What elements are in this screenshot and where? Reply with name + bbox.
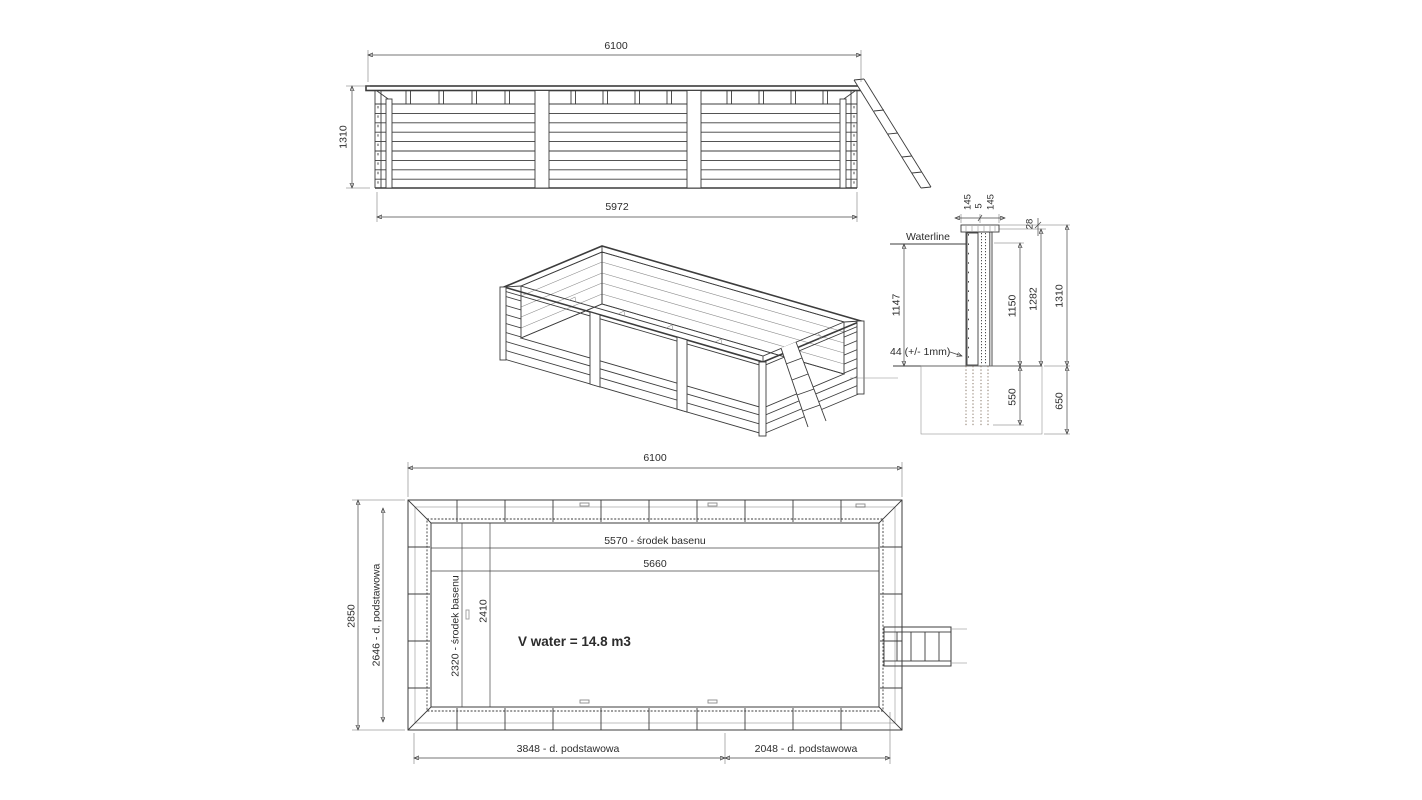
water-volume-label: V water = 14.8 m3 <box>518 634 631 649</box>
dim-pit-depth: 650 <box>1054 392 1066 410</box>
elevation-dimensions: 6100 1310 5972 <box>338 40 861 222</box>
dim-cap-right: 145 <box>985 194 996 210</box>
elevation-ladder <box>854 79 931 188</box>
dim-plan-base-height: 2646 - d. podstawowa <box>371 563 383 666</box>
elevation-view: 6100 1310 5972 <box>338 40 931 222</box>
dim-height-mid: 1282 <box>1028 287 1040 311</box>
drawing-canvas: 6100 1310 5972 <box>0 0 1422 800</box>
plan-dimensions: 6100 2850 2646 - d. podstawowa 5570 - śr… <box>346 452 902 764</box>
plank-thickness-note: 44 (+/- 1mm) <box>890 346 950 358</box>
waterline-label: Waterline <box>906 231 950 243</box>
dim-water-depth: 1147 <box>891 294 903 317</box>
plan-ladder <box>884 627 967 666</box>
plan-view: 6100 2850 2646 - d. podstawowa 5570 - śr… <box>346 452 967 764</box>
dim-cap-gap: 5 <box>973 203 984 208</box>
section-view: 145 5 145 28 Waterline 1147 1150 1282 13 <box>890 194 1070 434</box>
elevation-drawing <box>366 79 931 188</box>
frame-micro-labels <box>466 503 865 703</box>
dim-elevation-height: 1310 <box>338 125 350 149</box>
dim-plan-width: 6100 <box>643 452 667 464</box>
dim-pool-length: 5660 <box>643 558 667 570</box>
dim-rim-offset: 28 <box>1024 219 1035 230</box>
section-drawing <box>890 225 1042 434</box>
dim-pool-center-width: 2320 - środek basenu <box>450 575 462 677</box>
isometric-view <box>500 246 898 436</box>
pool-technical-drawing: 6100 1310 5972 <box>0 0 1422 800</box>
dim-elevation-width-top: 6100 <box>604 40 628 52</box>
dim-base-length-2: 2048 - d. podstawowa <box>755 743 858 755</box>
dim-base-length-1: 3848 - d. podstawowa <box>517 743 620 755</box>
dim-height-inner: 1150 <box>1007 295 1019 318</box>
dim-pool-center-length: 5570 - środek basenu <box>604 535 706 547</box>
section-dimensions: 145 5 145 28 Waterline 1147 1150 1282 13 <box>890 194 1070 434</box>
dim-elevation-width-bottom: 5972 <box>605 201 629 213</box>
dim-height-total: 1310 <box>1054 284 1066 308</box>
dim-pool-width: 2410 <box>478 599 490 623</box>
dim-plan-height: 2850 <box>346 604 358 628</box>
dim-cap-left: 145 <box>962 194 973 210</box>
dim-embed-depth: 550 <box>1007 388 1019 406</box>
